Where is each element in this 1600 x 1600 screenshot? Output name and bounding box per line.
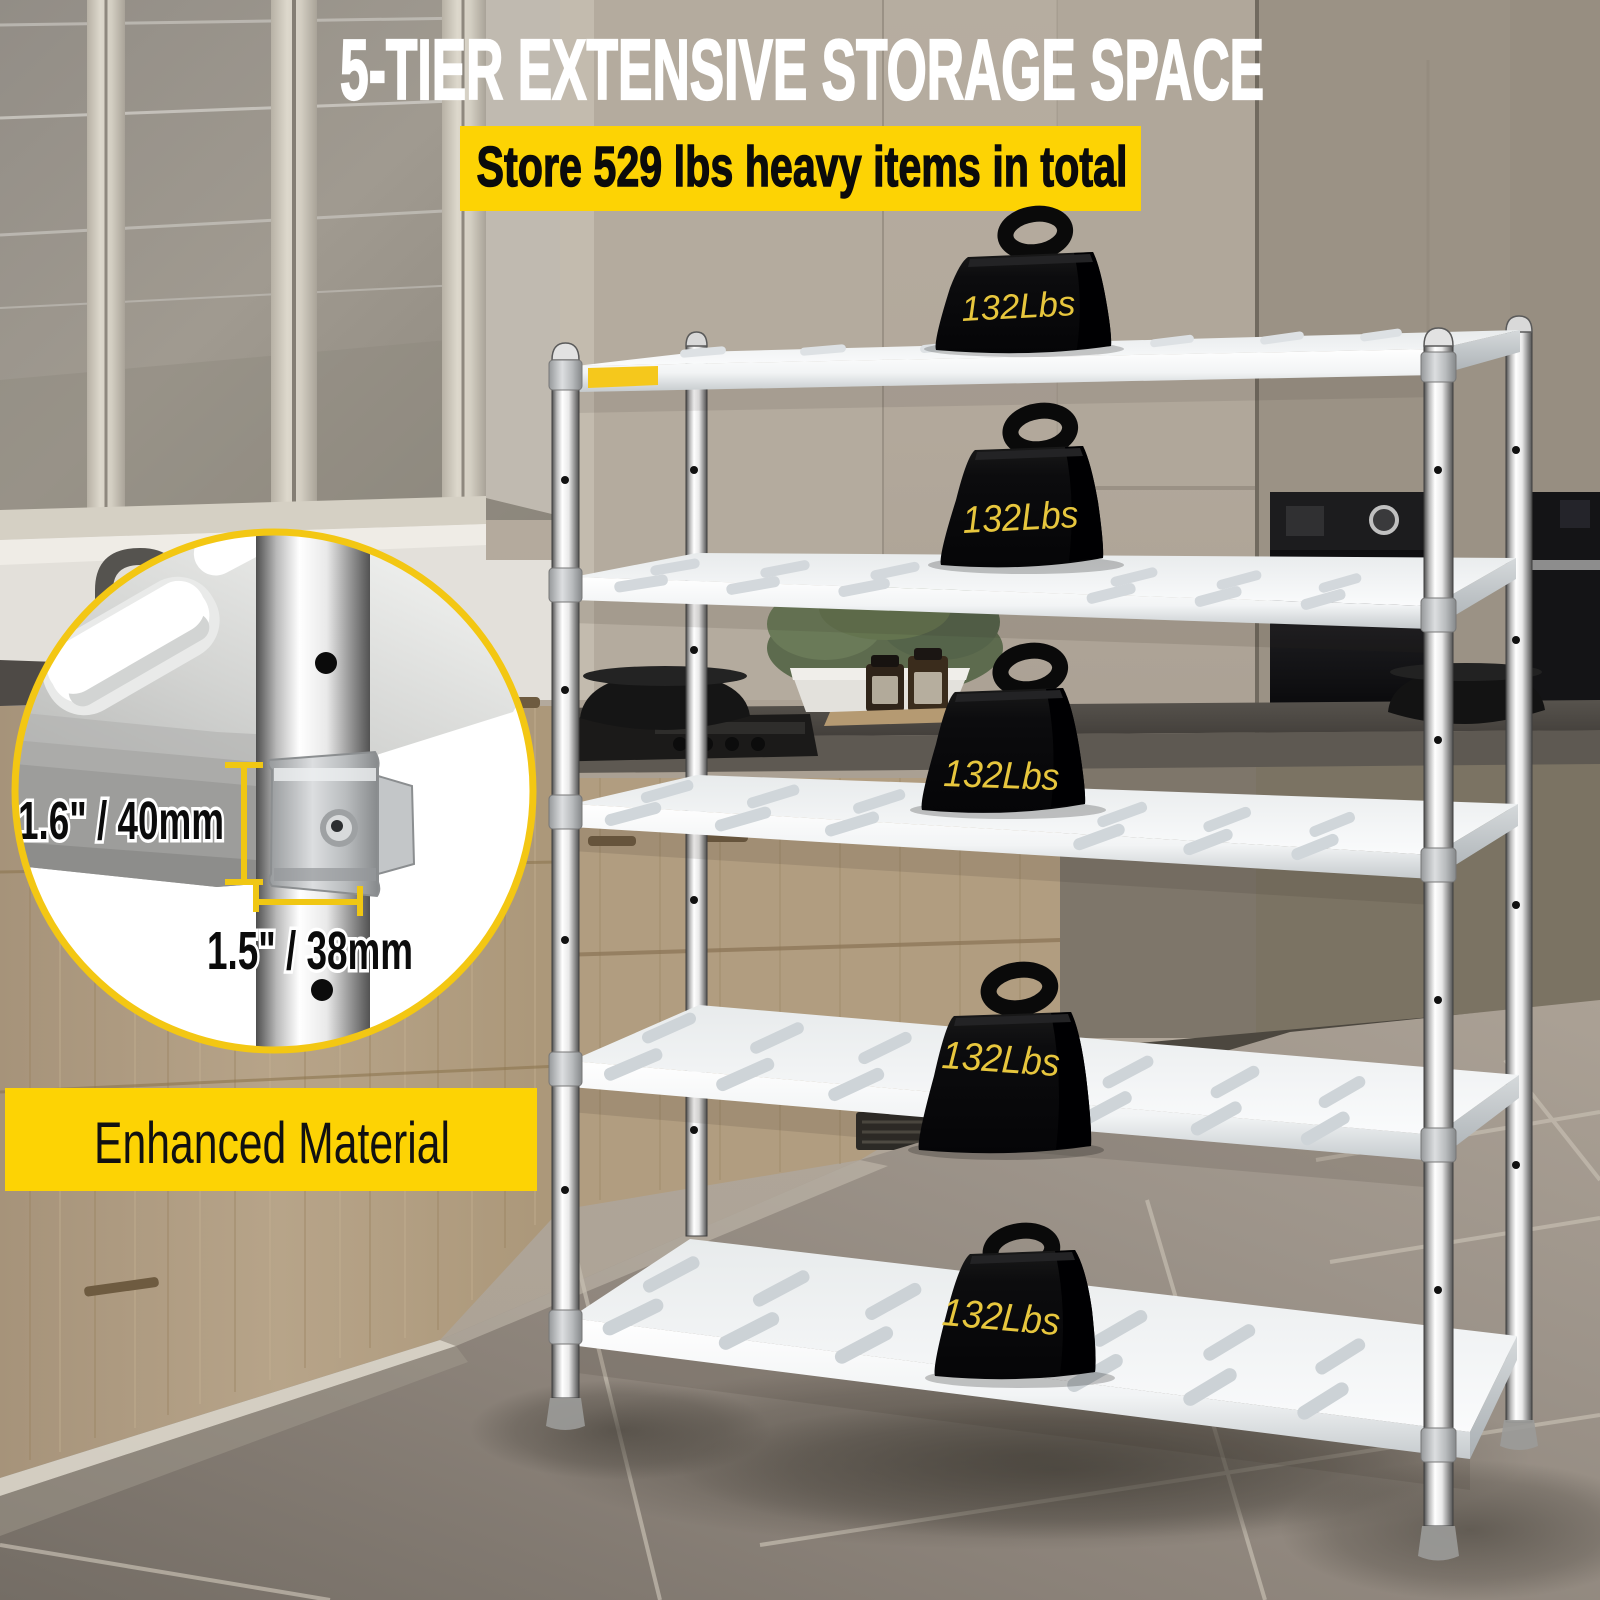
svg-text:132Lbs: 132Lbs [941,1034,1062,1085]
svg-text:132Lbs: 132Lbs [960,284,1076,329]
svg-text:132Lbs: 132Lbs [961,494,1079,542]
svg-text:Store 529 lbs heavy items in t: Store 529 lbs heavy items in total [477,135,1128,199]
svg-text:Enhanced Material: Enhanced Material [94,1111,450,1176]
svg-text:1.6" / 40mm: 1.6" / 40mm [18,791,224,851]
svg-text:132Lbs: 132Lbs [943,753,1060,799]
svg-text:5-TIER EXTENSIVE STORAGE SPACE: 5-TIER EXTENSIVE STORAGE SPACE [340,23,1264,118]
svg-text:1.5" / 38mm: 1.5" / 38mm [207,921,413,981]
